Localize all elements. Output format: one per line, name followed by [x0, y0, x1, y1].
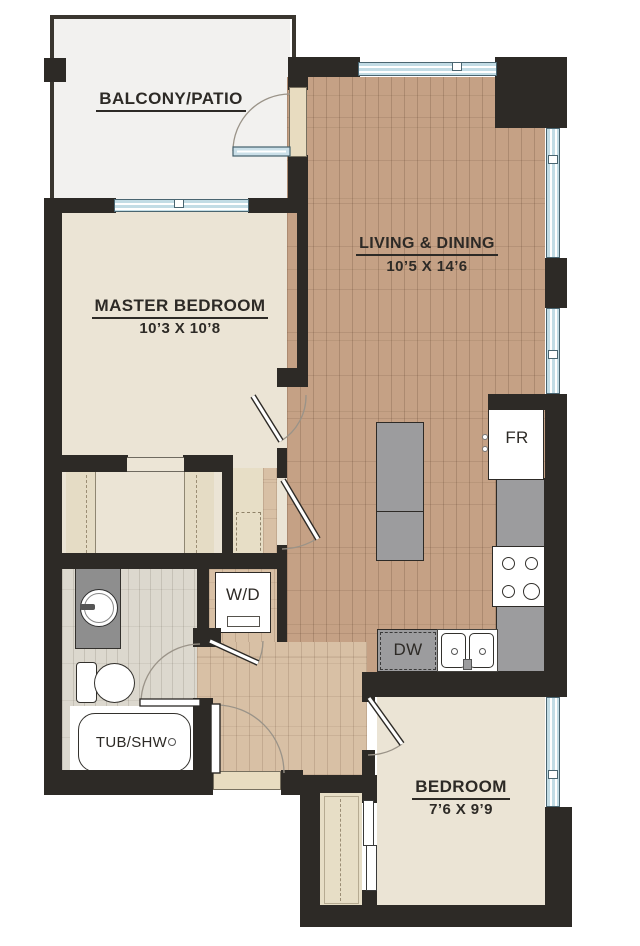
- burner-icon: [502, 585, 515, 598]
- fridge-hinge-dot: [482, 434, 488, 440]
- burner-icon: [525, 557, 538, 570]
- wall: [277, 545, 287, 642]
- wall: [545, 258, 567, 308]
- faucet-icon: [80, 604, 95, 610]
- wall: [362, 775, 377, 803]
- sink-drain-icon: [479, 648, 486, 655]
- wall: [545, 410, 567, 697]
- sink-faucet-icon: [463, 659, 472, 670]
- tub-shower-label: TUB/SHW: [84, 734, 179, 751]
- walkin-closet-rod-left-dash: [86, 475, 87, 553]
- living-dining-label-text: LIVING & DINING: [356, 235, 498, 256]
- wall: [292, 15, 296, 59]
- wall: [222, 460, 233, 560]
- wall: [44, 770, 213, 795]
- wall: [300, 905, 572, 927]
- wall: [362, 672, 375, 702]
- kitchen-island: [376, 422, 424, 561]
- wall: [44, 58, 66, 82]
- fridge-hinge-dot: [482, 446, 488, 452]
- bedroom-dims: 7’6 X 9’9: [381, 801, 541, 818]
- wall: [300, 775, 320, 927]
- balcony-label-text: BALCONY/PATIO: [96, 89, 245, 112]
- window-mullion: [174, 199, 184, 208]
- wall: [277, 368, 308, 387]
- window-mullion: [548, 155, 558, 164]
- wall: [362, 890, 377, 927]
- dishwasher-label: DW: [380, 640, 436, 660]
- wall: [495, 57, 567, 128]
- nook-wood-strip: [263, 468, 277, 558]
- stove: [492, 546, 545, 607]
- walkin-closet-rod-left: [66, 472, 96, 556]
- balcony-door-jamb: [289, 87, 307, 157]
- master-bedroom-dims: 10’3 X 10’8: [60, 320, 300, 337]
- nook-shelf: [236, 512, 261, 556]
- burner-icon: [502, 557, 515, 570]
- entry-threshold: [213, 771, 281, 790]
- living-top-window: [358, 62, 497, 76]
- wall: [44, 198, 62, 795]
- living-dining-label: LIVING & DINING: [327, 235, 527, 256]
- living-dining-dims: 10’5 X 14’6: [327, 258, 527, 275]
- walkin-closet-rod-right: [184, 472, 214, 556]
- burner-icon: [523, 583, 540, 600]
- bedroom-label-text: BEDROOM: [412, 777, 510, 800]
- bedroom-closet-rod-dash: [340, 799, 341, 901]
- wall: [362, 750, 375, 777]
- wall: [50, 15, 296, 19]
- living-right-window-upper: [546, 128, 560, 258]
- washer-dryer-door: [227, 616, 260, 627]
- bedroom-closet-slider-panel: [366, 845, 377, 891]
- wall: [300, 775, 367, 793]
- window-mullion: [452, 62, 462, 71]
- window-mullion: [548, 770, 558, 779]
- balcony-label: BALCONY/PATIO: [61, 89, 281, 112]
- hallway-floor: [197, 642, 367, 775]
- master-bedroom-label: MASTER BEDROOM: [60, 296, 300, 319]
- refrigerator-label: FR: [490, 428, 544, 448]
- bedroom-label: BEDROOM: [381, 777, 541, 800]
- wall: [290, 57, 360, 77]
- window-mullion: [548, 350, 558, 359]
- wall: [277, 448, 287, 478]
- washer-dryer-label: W/D: [216, 585, 270, 605]
- toilet-bowl: [94, 663, 135, 703]
- master-bedroom-label-text: MASTER BEDROOM: [92, 296, 269, 319]
- wall: [362, 672, 545, 697]
- floor-plan: BALCONY/PATIO LIVING & DINING 10’5 X 14’…: [0, 0, 640, 946]
- wall: [44, 455, 128, 472]
- wall: [44, 553, 287, 569]
- walkin-closet-rod-right-dash: [196, 475, 197, 553]
- kitchen-sink: [437, 629, 498, 672]
- wall: [488, 394, 567, 410]
- walkin-closet-opening: [127, 457, 184, 472]
- wall: [50, 15, 54, 200]
- bedroom-closet-slider-panel: [363, 800, 374, 846]
- wall: [193, 628, 221, 647]
- wall: [281, 770, 303, 795]
- sink-drain-icon: [451, 648, 458, 655]
- bedroom-closet-rod: [324, 796, 359, 904]
- wall: [288, 155, 308, 200]
- wall: [297, 200, 308, 372]
- kitchen-island-divider: [377, 511, 423, 512]
- wall: [197, 569, 209, 631]
- wall: [193, 698, 213, 774]
- bedroom-window: [546, 697, 560, 807]
